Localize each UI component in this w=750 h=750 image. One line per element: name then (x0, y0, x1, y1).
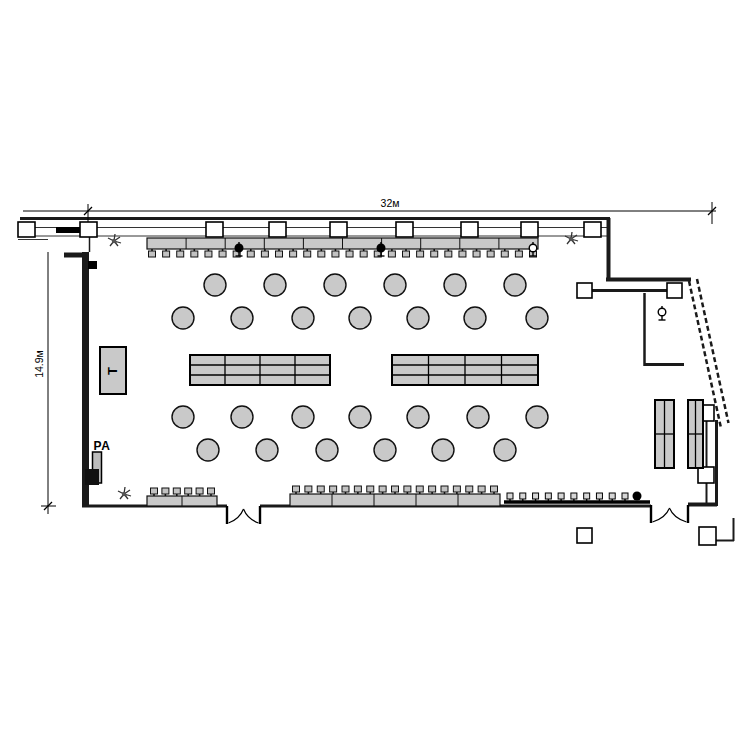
wall-column (521, 222, 538, 237)
counter-stool (609, 493, 615, 499)
plant-icon (565, 232, 578, 244)
round-table (407, 406, 429, 428)
round-table (324, 274, 346, 296)
buffet-stool (346, 251, 353, 257)
counter-stool (533, 493, 539, 499)
door-leaf-arc (244, 509, 259, 523)
pa-speaker-label: PA (94, 439, 111, 453)
wall-column (699, 527, 716, 545)
buffet-stool (304, 251, 311, 257)
buffet-stool (185, 488, 192, 494)
buffet-stool (208, 488, 215, 494)
buffet-stool (261, 251, 268, 257)
buffet-stool (318, 251, 325, 257)
buffet-stool (466, 486, 473, 492)
buffet-stool (149, 251, 156, 257)
mic-dot (633, 492, 642, 501)
round-table (407, 307, 429, 329)
round-table (231, 307, 253, 329)
pa-subwoofer (85, 469, 99, 485)
wall-column (18, 222, 35, 237)
buffet-stool (360, 251, 367, 257)
buffet-stool (247, 251, 254, 257)
microphone-icon (658, 306, 666, 320)
wall-column (584, 222, 601, 237)
round-table (526, 307, 548, 329)
round-table (444, 274, 466, 296)
plant-center (122, 492, 126, 496)
buffet-stool (379, 486, 386, 492)
buffet-stool (293, 486, 300, 492)
freestanding-box (577, 528, 592, 543)
wall-column (667, 283, 682, 298)
buffet-stool (445, 251, 452, 257)
buffet-stool (487, 251, 494, 257)
buffet-stool (403, 251, 410, 257)
buffet-stool (404, 486, 411, 492)
buffet-stool (431, 251, 438, 257)
floor-plan-canvas: 32м 14.9м T PA (0, 0, 750, 750)
round-table (374, 439, 396, 461)
buffet-stool (342, 486, 349, 492)
buffet-stool (162, 488, 169, 494)
wall-column (577, 283, 592, 298)
counter-stool (596, 493, 602, 499)
round-table (432, 439, 454, 461)
door-leaf-arc (229, 509, 244, 523)
round-table (316, 439, 338, 461)
round-table (494, 439, 516, 461)
buffet-stool (416, 486, 423, 492)
buffet-stool (417, 251, 424, 257)
buffet-stool (163, 251, 170, 257)
buffet-stool (191, 251, 198, 257)
wall-column (269, 222, 286, 237)
round-table (172, 307, 194, 329)
stage-label: T (105, 367, 120, 375)
wall-column (330, 222, 347, 237)
bottom-mid-buffet (290, 494, 500, 506)
counter-stool (558, 493, 564, 499)
round-table (464, 307, 486, 329)
buffet-stool (276, 251, 283, 257)
buffet-stool (290, 251, 297, 257)
counter-stool (507, 493, 513, 499)
buffet-stool (330, 486, 337, 492)
round-table (172, 406, 194, 428)
buffet-stool (219, 251, 226, 257)
buffet-stool (317, 486, 324, 492)
buffet-stool (151, 488, 158, 494)
round-table (204, 274, 226, 296)
round-table (231, 406, 253, 428)
counter-stool (545, 493, 551, 499)
buffet-stool (491, 486, 498, 492)
height-dimension-label: 14.9м (33, 350, 45, 378)
wall-column (698, 467, 714, 483)
round-table (256, 439, 278, 461)
round-table (526, 406, 548, 428)
buffet-stool (305, 486, 312, 492)
plant-icon (118, 487, 131, 499)
buffet-stool (501, 251, 508, 257)
wall-column (80, 222, 97, 237)
round-table (292, 307, 314, 329)
round-table (264, 274, 286, 296)
entry-door-bar (56, 227, 80, 233)
width-dimension-label: 32м (381, 197, 400, 209)
counter-stool (520, 493, 526, 499)
buffet-stool (392, 486, 399, 492)
wall-fixture-knob (88, 261, 97, 269)
mic-head (658, 308, 666, 316)
buffet-stool (173, 488, 180, 494)
buffet-stool (515, 251, 522, 257)
mic-head (235, 244, 243, 252)
buffet-stool (459, 251, 466, 257)
doors-layer (227, 505, 688, 524)
buffet-stool (354, 486, 361, 492)
round-table (197, 439, 219, 461)
plant-center (112, 239, 116, 243)
microphone-icon (633, 492, 642, 501)
door-leaf-arc (670, 508, 687, 522)
buffet-stool (205, 251, 212, 257)
round-table (349, 406, 371, 428)
buffet-stool (453, 486, 460, 492)
buffet-stool (332, 251, 339, 257)
buffet-stool (441, 486, 448, 492)
buffet-stool (388, 251, 395, 257)
wall-column (461, 222, 478, 237)
buffet-stool (196, 488, 203, 494)
buffet-stool (473, 251, 480, 257)
round-table (384, 274, 406, 296)
mic-head (377, 244, 385, 252)
wall-column (206, 222, 223, 237)
round-table (292, 406, 314, 428)
buffet-stool (177, 251, 184, 257)
buffet-stool (429, 486, 436, 492)
floor-plan-svg: 32м 14.9м T PA (0, 0, 750, 750)
buffet-stool (478, 486, 485, 492)
counter-stool (622, 493, 628, 499)
round-table (467, 406, 489, 428)
wall-column (396, 222, 413, 237)
round-table (349, 307, 371, 329)
buffet-stool (367, 486, 374, 492)
round-table (504, 274, 526, 296)
counter-stool (571, 493, 577, 499)
counter-stool (584, 493, 590, 499)
plant-center (569, 237, 573, 241)
mic-head (529, 244, 537, 252)
door-leaf-arc (653, 508, 670, 522)
